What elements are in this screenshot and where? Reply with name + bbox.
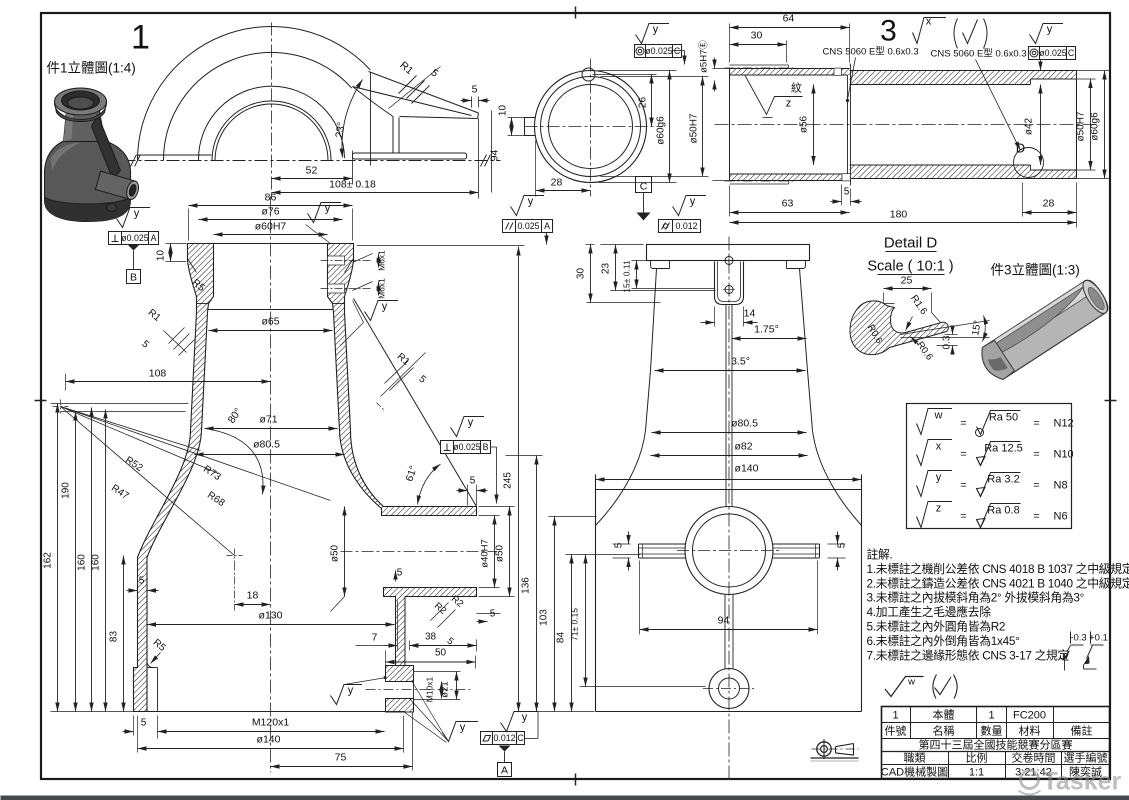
svg-text:本體: 本體: [933, 708, 955, 722]
svg-text:比例: 比例: [966, 751, 988, 765]
svg-text:ø60g6: ø60g6: [1090, 112, 1101, 141]
svg-text:63: 63: [782, 198, 794, 210]
svg-text:0.012: 0.012: [675, 221, 697, 231]
svg-text:108: 108: [149, 368, 167, 380]
svg-text:備註: 備註: [1071, 725, 1093, 738]
svg-text:C: C: [1068, 48, 1075, 58]
svg-text:C: C: [517, 733, 524, 743]
svg-text:A: A: [544, 221, 550, 231]
svg-text:B: B: [483, 442, 489, 452]
svg-text:ø65: ø65: [261, 316, 279, 328]
svg-text:交卷時間: 交卷時間: [1012, 751, 1056, 765]
svg-text:w: w: [934, 410, 943, 422]
svg-text:第四十三屆全國技能競賽分區賽: 第四十三屆全國技能競賽分區賽: [919, 738, 1073, 752]
svg-text:3.未標註之內拔模斜角為2° 外拔模斜角為3°: 3.未標註之內拔模斜角為2° 外拔模斜角為3°: [867, 591, 1085, 605]
svg-text:ø40H7: ø40H7: [480, 539, 491, 568]
svg-text:A: A: [501, 765, 508, 777]
svg-text:1: 1: [892, 710, 898, 722]
svg-text:名稱: 名稱: [933, 724, 955, 738]
svg-text:Ra 50: Ra 50: [989, 412, 1018, 424]
svg-text:30: 30: [576, 268, 587, 280]
svg-text:18: 18: [247, 590, 259, 602]
svg-text:y: y: [690, 196, 696, 208]
svg-text:1.75°: 1.75°: [754, 324, 779, 336]
svg-text:94: 94: [489, 150, 501, 162]
svg-text:4.加工產生之毛邊應去除: 4.加工產生之毛邊應去除: [867, 605, 992, 619]
svg-text:5: 5: [837, 542, 848, 548]
svg-text:=: =: [1033, 449, 1039, 461]
svg-text:28: 28: [551, 177, 563, 189]
svg-text:y: y: [325, 203, 331, 215]
svg-text:75: 75: [335, 752, 347, 764]
svg-text:15± 0.11: 15± 0.11: [622, 260, 632, 293]
svg-text:7.未標註之邊緣形態依 CNS 3-17 之規定: 7.未標註之邊緣形態依 CNS 3-17 之規定: [867, 648, 1070, 662]
svg-text:註解.: 註解.: [867, 548, 893, 562]
svg-text:=: =: [1033, 511, 1039, 523]
svg-text:=: =: [960, 511, 966, 523]
svg-text:1: 1: [131, 19, 150, 57]
svg-text:0.012: 0.012: [493, 733, 515, 743]
svg-text:38: 38: [425, 632, 437, 643]
svg-text:z: z: [936, 503, 942, 515]
svg-text:1:1: 1:1: [969, 767, 984, 779]
svg-text:x: x: [936, 441, 942, 453]
svg-text:23: 23: [601, 263, 612, 275]
svg-text:1: 1: [988, 710, 994, 722]
svg-text:6.未標註之內外倒角皆為1x45°: 6.未標註之內外倒角皆為1x45°: [867, 634, 1021, 648]
svg-text:86: 86: [265, 192, 277, 204]
svg-text:N8: N8: [1054, 480, 1068, 492]
svg-text:A: A: [151, 233, 157, 243]
svg-text:ø71: ø71: [259, 414, 277, 426]
svg-text:=: =: [960, 449, 966, 461]
svg-text:B: B: [130, 272, 137, 284]
svg-text:ø82: ø82: [734, 441, 752, 453]
svg-text:64: 64: [783, 13, 795, 25]
svg-text:y: y: [348, 685, 354, 697]
svg-text:職類: 職類: [904, 752, 926, 765]
svg-text:103: 103: [539, 609, 550, 626]
svg-text:ø80.5: ø80.5: [253, 439, 280, 451]
svg-text:5: 5: [844, 187, 850, 198]
svg-text:ø50: ø50: [495, 544, 506, 562]
svg-text:y: y: [382, 301, 388, 313]
svg-text:14: 14: [744, 308, 756, 320]
svg-text:162: 162: [43, 552, 54, 569]
svg-text:+0.1: +0.1: [1089, 633, 1108, 644]
svg-text:5: 5: [472, 84, 478, 96]
svg-text:Tasker: Tasker: [1043, 768, 1122, 796]
svg-text:71± 0.15: 71± 0.15: [570, 608, 580, 641]
svg-text:件1立體圖(1:4): 件1立體圖(1:4): [47, 61, 136, 76]
svg-text:y: y: [528, 196, 534, 208]
svg-text:y: y: [653, 24, 659, 36]
svg-text:M6x1: M6x1: [377, 250, 387, 271]
svg-text:C: C: [674, 46, 681, 56]
svg-text:Scale ( 10:1 ): Scale ( 10:1 ): [867, 259, 953, 275]
svg-text:M10x1: M10x1: [425, 676, 435, 702]
svg-text:y: y: [460, 722, 466, 734]
svg-text:y: y: [134, 208, 140, 220]
svg-text:CNS 5060 E型 0.6x0.3: CNS 5060 E型 0.6x0.3: [823, 47, 919, 58]
svg-text:選手編號: 選手編號: [1064, 751, 1108, 765]
svg-text:w: w: [907, 677, 915, 688]
svg-text:件號: 件號: [885, 725, 907, 738]
svg-text:3.5°: 3.5°: [731, 356, 750, 368]
svg-text:-0.3: -0.3: [1070, 633, 1086, 644]
svg-text:5: 5: [397, 568, 403, 579]
svg-text:件3立體圖(1:3): 件3立體圖(1:3): [991, 263, 1080, 278]
svg-text:y: y: [936, 472, 942, 484]
svg-text:5: 5: [141, 718, 147, 729]
svg-text:y: y: [468, 417, 474, 429]
svg-text:z: z: [786, 98, 792, 110]
svg-text:0.025: 0.025: [517, 221, 539, 231]
svg-text:ø60g6: ø60g6: [656, 116, 667, 145]
svg-text:Ra 0.8: Ra 0.8: [987, 505, 1019, 517]
svg-text:25: 25: [901, 275, 913, 287]
svg-text:CAD機械製圖: CAD機械製圖: [881, 765, 948, 779]
svg-text:ø0.025: ø0.025: [645, 46, 672, 56]
svg-text:ø5H7Ⓔ: ø5H7Ⓔ: [699, 40, 710, 73]
svg-text:7: 7: [372, 633, 378, 644]
svg-text:1.未標註之機削公差依 CNS 4018 B 1037 之中: 1.未標註之機削公差依 CNS 4018 B 1037 之中級規定: [867, 562, 1129, 576]
svg-text:5: 5: [139, 576, 145, 587]
svg-text:Ra 12.5: Ra 12.5: [984, 443, 1023, 455]
svg-text:ø140: ø140: [257, 734, 281, 746]
svg-text:26: 26: [638, 97, 649, 109]
svg-text:ø0.025: ø0.025: [121, 233, 148, 243]
svg-text:N10: N10: [1054, 449, 1074, 461]
svg-text:136: 136: [521, 577, 532, 594]
svg-text:28: 28: [1043, 198, 1055, 210]
svg-text:N6: N6: [1054, 511, 1068, 523]
svg-text:ø140: ø140: [735, 463, 759, 475]
svg-text:y: y: [1047, 24, 1053, 36]
svg-text:180: 180: [890, 209, 908, 221]
svg-text:5: 5: [470, 476, 476, 487]
svg-text:245: 245: [503, 472, 514, 489]
svg-text:ø76: ø76: [261, 206, 279, 218]
svg-text:=: =: [1033, 480, 1039, 492]
svg-text:ø50: ø50: [330, 544, 341, 562]
svg-text:ø60H7: ø60H7: [255, 221, 287, 233]
svg-text:10: 10: [498, 105, 509, 117]
svg-text:190: 190: [61, 482, 72, 499]
svg-text:CNS 5060 E型 0.6x0.3: CNS 5060 E型 0.6x0.3: [931, 49, 1027, 60]
svg-text:M6x1: M6x1: [377, 278, 387, 299]
svg-text:材料: 材料: [1019, 724, 1041, 738]
svg-text:x: x: [926, 16, 932, 28]
svg-text:M120x1: M120x1: [252, 717, 290, 729]
svg-text:ø56: ø56: [799, 115, 810, 133]
svg-text:ø42: ø42: [1024, 117, 1035, 135]
svg-text:83: 83: [109, 631, 120, 643]
svg-text:108± 0.18: 108± 0.18: [329, 179, 376, 191]
svg-text:ø130: ø130: [259, 610, 283, 622]
svg-text:FC200: FC200: [1013, 710, 1046, 722]
svg-text:52: 52: [306, 165, 318, 177]
svg-text:ø50H7: ø50H7: [1076, 111, 1087, 141]
svg-text:C: C: [640, 181, 648, 193]
svg-text:=: =: [960, 480, 966, 492]
svg-text:=: =: [960, 418, 966, 430]
svg-text:=: =: [1033, 418, 1039, 430]
svg-text:N12: N12: [1054, 418, 1074, 430]
svg-text:50: 50: [435, 648, 447, 659]
svg-text:Ra 3.2: Ra 3.2: [987, 474, 1019, 486]
svg-text:10: 10: [156, 250, 167, 262]
svg-text:ø50H7: ø50H7: [689, 113, 700, 143]
svg-text:ø0.025: ø0.025: [453, 442, 480, 452]
svg-text:30: 30: [751, 30, 763, 42]
svg-text:數量: 數量: [981, 725, 1003, 738]
svg-text:y: y: [522, 712, 528, 724]
svg-text:ø0.025: ø0.025: [1039, 48, 1066, 58]
svg-text:94: 94: [718, 615, 730, 627]
svg-text:5: 5: [490, 609, 496, 620]
svg-text:ø80.5: ø80.5: [731, 418, 758, 430]
svg-text:5.未標註之內外圓角皆為R2: 5.未標註之內外圓角皆為R2: [867, 620, 1006, 634]
svg-text:Detail D: Detail D: [884, 235, 938, 252]
svg-text:2.未標註之鑄造公差依 CNS 4021 B 1040 之中: 2.未標註之鑄造公差依 CNS 4021 B 1040 之中級規定: [867, 576, 1129, 590]
svg-text:84: 84: [556, 632, 567, 644]
svg-text:D: D: [1016, 141, 1025, 156]
svg-text:紋: 紋: [791, 81, 802, 95]
svg-text:5: 5: [614, 542, 625, 548]
svg-text:3: 3: [880, 15, 897, 48]
svg-text:160: 160: [91, 554, 102, 571]
svg-text:160: 160: [77, 554, 88, 571]
